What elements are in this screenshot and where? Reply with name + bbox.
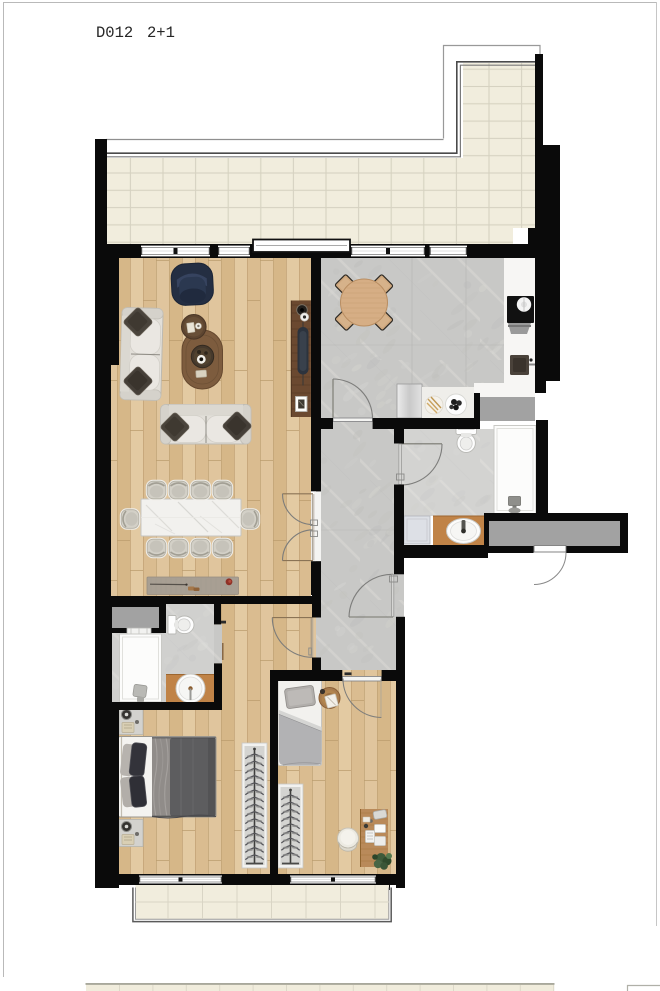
svg-text:D012: D012 [96,24,133,42]
svg-text:2+1: 2+1 [147,24,175,42]
